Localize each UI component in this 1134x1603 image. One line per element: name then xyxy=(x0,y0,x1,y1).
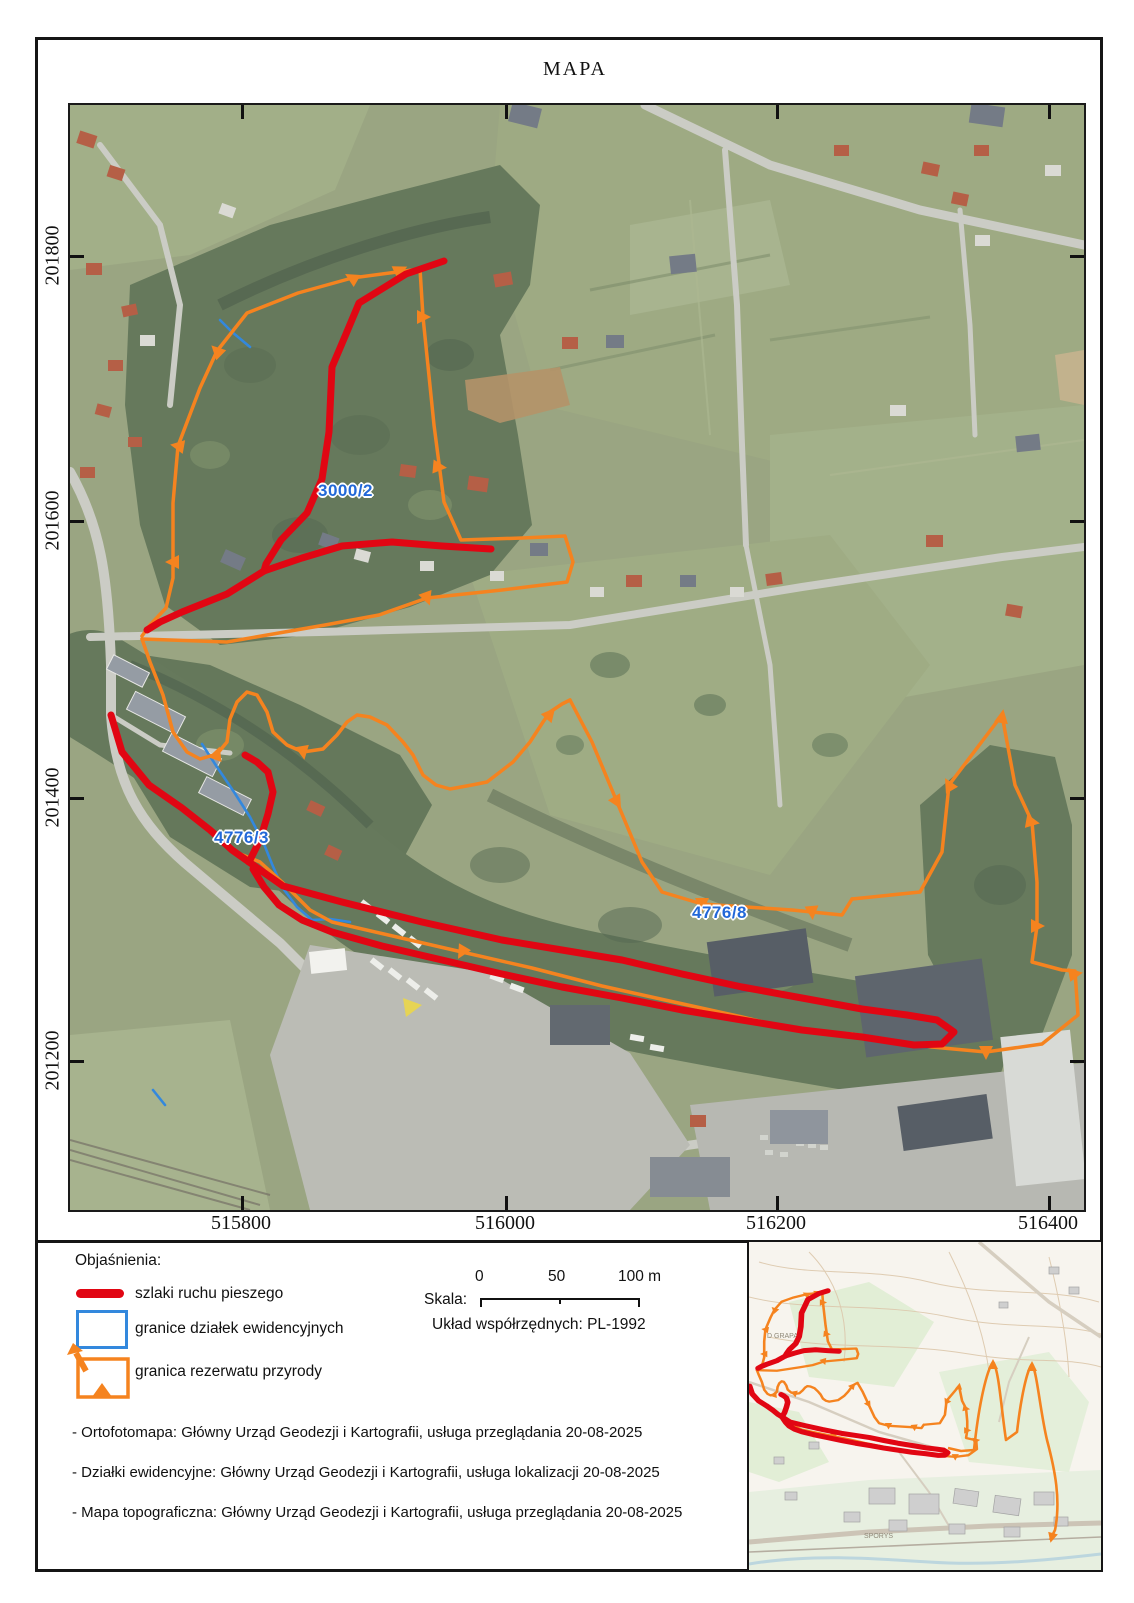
legend-heading: Objaśnienia: xyxy=(75,1252,161,1270)
axis-tick xyxy=(1048,105,1051,119)
scale-label: Skala: xyxy=(424,1291,467,1309)
y-axis-label: 201600 xyxy=(42,461,65,581)
parcel-label-3000-2: 3000/2 xyxy=(318,481,373,501)
parcel-label-4776-3: 4776/3 xyxy=(214,828,269,848)
inset-canvas: D GRAPA SPORYS xyxy=(749,1242,1101,1570)
axis-tick xyxy=(70,255,84,258)
map-sheet: MAPA xyxy=(0,0,1134,1603)
inset-toponym-grapa: D GRAPA xyxy=(767,1333,798,1340)
axis-tick xyxy=(1070,797,1084,800)
page-title: MAPA xyxy=(68,58,1082,81)
scale-bar-tick xyxy=(480,1298,482,1307)
trail-swatch xyxy=(76,1289,124,1298)
scale-bar-tick xyxy=(559,1298,561,1304)
axis-tick xyxy=(505,1196,508,1210)
axis-tick xyxy=(70,797,84,800)
legend-item-trails: szlaki ruchu pieszego xyxy=(135,1285,283,1303)
crs-label: Układ współrzędnych: PL-1992 xyxy=(432,1316,646,1334)
axis-tick xyxy=(1070,520,1084,523)
source-orthophoto: - Ortofotomapa: Główny Urząd Geodezji i … xyxy=(72,1424,642,1441)
legend-item-reserve: granica rezerwatu przyrody xyxy=(135,1363,322,1381)
scale-50: 50 xyxy=(548,1268,565,1286)
axis-tick xyxy=(776,105,779,119)
axis-tick xyxy=(505,105,508,119)
axis-tick xyxy=(1070,1060,1084,1063)
y-axis-label: 201400 xyxy=(42,738,65,858)
axis-tick xyxy=(1048,1196,1051,1210)
parcel-label-4776-8: 4776/8 xyxy=(692,903,747,923)
x-axis-label: 516200 xyxy=(716,1212,836,1235)
axis-tick xyxy=(241,1196,244,1210)
x-axis-label: 516400 xyxy=(988,1212,1108,1235)
scale-100: 100 m xyxy=(618,1268,661,1286)
axis-tick xyxy=(70,520,84,523)
axis-tick xyxy=(241,105,244,119)
inset-toponym-sporys: SPORYS xyxy=(864,1533,893,1540)
scale-bar-tick xyxy=(638,1298,640,1307)
x-axis-label: 516000 xyxy=(445,1212,565,1235)
overview-inset-map: D GRAPA SPORYS xyxy=(747,1240,1103,1572)
source-parcels: - Działki ewidencyjne: Główny Urząd Geod… xyxy=(72,1464,660,1481)
orthophoto-canvas xyxy=(70,105,1084,1210)
reserve-swatch xyxy=(64,1341,142,1403)
axis-tick xyxy=(1070,255,1084,258)
orthophoto-map: 3000/2 4776/3 4776/8 xyxy=(68,103,1086,1212)
x-axis-label: 515800 xyxy=(181,1212,301,1235)
legend-item-parcels: granice działek ewidencyjnych xyxy=(135,1320,344,1338)
y-axis-label: 201800 xyxy=(42,196,65,316)
scale-0: 0 xyxy=(475,1268,484,1286)
axis-tick xyxy=(70,1060,84,1063)
source-topomap: - Mapa topograficzna: Główny Urząd Geode… xyxy=(72,1504,682,1521)
axis-tick xyxy=(776,1196,779,1210)
y-axis-label: 201200 xyxy=(42,1001,65,1121)
